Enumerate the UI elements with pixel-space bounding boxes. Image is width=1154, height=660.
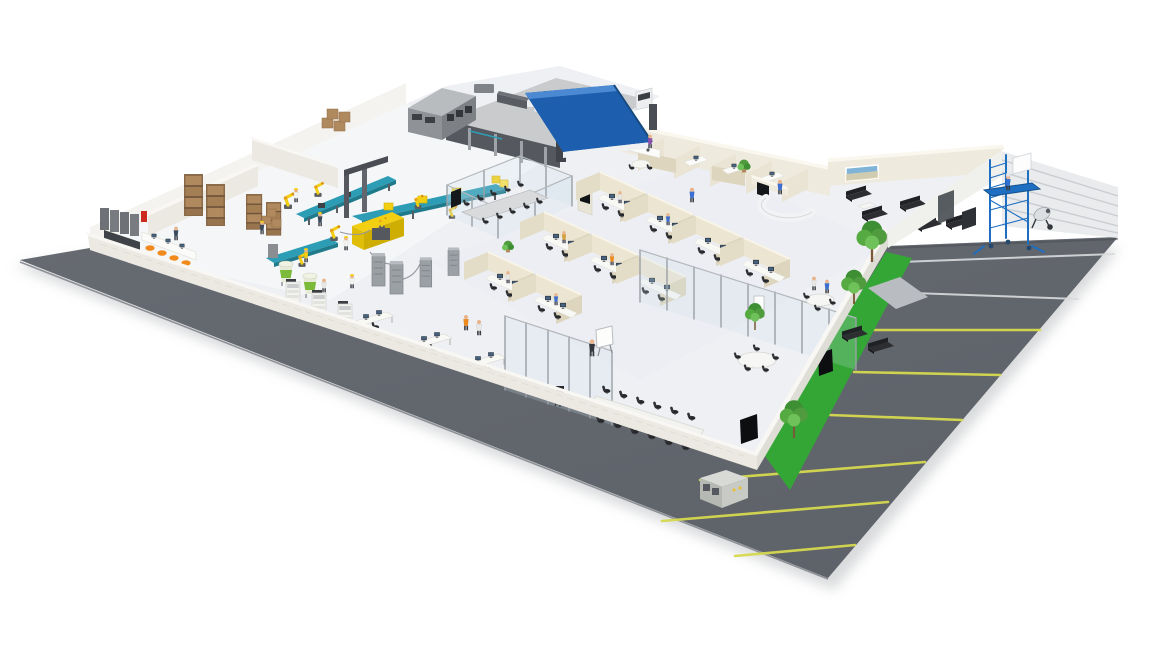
helmet	[1006, 173, 1010, 177]
glass-door	[938, 190, 954, 224]
facility-illustration	[0, 0, 1154, 660]
fire-cabinet	[141, 211, 147, 222]
facility-scene	[0, 0, 1154, 660]
dock-pillar	[544, 147, 547, 167]
wall-picture	[846, 165, 878, 181]
pallet-rack	[184, 174, 203, 216]
wall-unit	[962, 207, 976, 230]
pallet-rack	[206, 184, 225, 226]
server-cabinet	[372, 253, 385, 286]
server-cabinet	[420, 257, 432, 287]
server-cabinet	[390, 261, 403, 294]
round-table	[738, 352, 776, 368]
server-cabinet	[448, 247, 459, 275]
gray-truck	[474, 84, 494, 93]
pallet-rack	[246, 194, 262, 230]
control-panel	[268, 244, 278, 258]
stove	[646, 148, 649, 151]
